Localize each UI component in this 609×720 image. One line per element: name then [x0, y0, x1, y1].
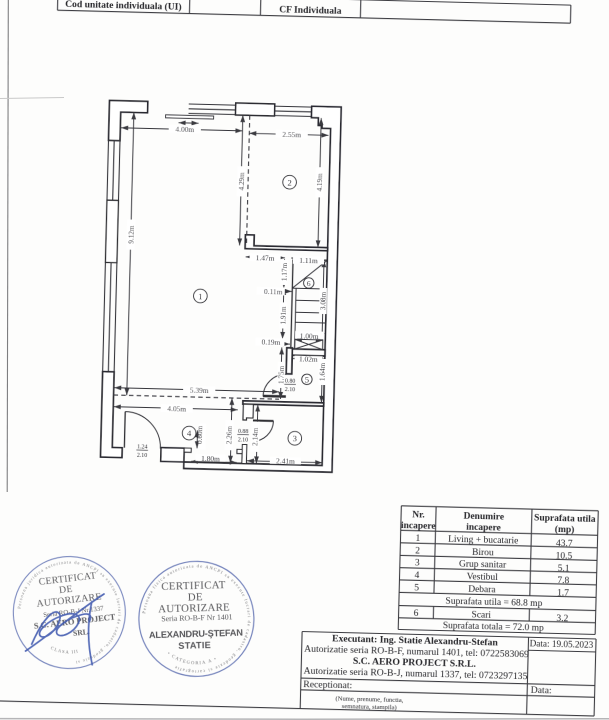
svg-text:2.55m: 2.55m: [282, 130, 301, 139]
svg-text:1.80m: 1.80m: [201, 454, 220, 463]
svg-text:incapere: incapere: [401, 521, 436, 532]
svg-text:1.00m: 1.00m: [300, 332, 319, 341]
svg-text:Denumire: Denumire: [463, 512, 504, 523]
svg-text:Scari: Scari: [471, 610, 491, 620]
svg-text:Receptionat:: Receptionat:: [303, 679, 352, 691]
svg-text:CF Individuala: CF Individuala: [279, 4, 342, 17]
svg-text:5: 5: [414, 583, 419, 593]
svg-text:5.39m: 5.39m: [190, 386, 209, 395]
svg-text:4: 4: [414, 571, 419, 581]
svg-text:2.41m: 2.41m: [276, 457, 295, 466]
svg-text:Nr.: Nr.: [412, 510, 425, 520]
svg-text:STATIE: STATIE: [178, 640, 211, 651]
svg-text:4.29m: 4.29m: [238, 172, 246, 191]
svg-text:2.10: 2.10: [137, 453, 148, 459]
svg-text:Data:: Data:: [531, 685, 552, 697]
svg-text:7.8: 7.8: [557, 576, 569, 586]
svg-text:1.64m: 1.64m: [319, 362, 327, 381]
svg-text:2.14m: 2.14m: [251, 427, 259, 446]
svg-text:4.05m: 4.05m: [167, 404, 186, 413]
svg-text:(mp): (mp): [555, 524, 575, 535]
svg-text:0.60m: 0.60m: [196, 425, 204, 444]
svg-text:9.12m: 9.12m: [127, 225, 135, 244]
svg-text:3.2: 3.2: [556, 614, 568, 624]
svg-text:5: 5: [305, 374, 310, 384]
svg-text:2.26m: 2.26m: [225, 426, 233, 445]
svg-text:1.11m: 1.11m: [299, 256, 318, 265]
svg-text:2: 2: [415, 546, 420, 556]
svg-text:3.08m: 3.08m: [319, 291, 327, 310]
svg-text:1.91m: 1.91m: [279, 306, 287, 325]
svg-text:1.7: 1.7: [557, 588, 569, 598]
svg-text:3: 3: [293, 433, 298, 443]
svg-text:4.19m: 4.19m: [316, 173, 324, 192]
svg-text:4.00m: 4.00m: [175, 125, 194, 134]
svg-text:1.47m: 1.47m: [256, 253, 275, 262]
svg-text:10.5: 10.5: [555, 551, 572, 561]
svg-text:0.11m: 0.11m: [264, 287, 283, 296]
svg-text:6: 6: [307, 279, 311, 288]
svg-text:2: 2: [287, 177, 292, 187]
svg-text:43.7: 43.7: [556, 539, 573, 549]
svg-text:Living + bucatarie: Living + bucatarie: [448, 535, 518, 547]
svg-text:1.17m: 1.17m: [281, 262, 289, 281]
svg-text:Birou: Birou: [472, 548, 494, 559]
svg-text:3: 3: [415, 559, 420, 569]
svg-text:0.19m: 0.19m: [261, 338, 280, 347]
svg-text:6: 6: [414, 609, 419, 619]
svg-text:2.10: 2.10: [238, 437, 249, 443]
svg-text:1: 1: [415, 534, 420, 544]
svg-text:Grup sanitar: Grup sanitar: [459, 560, 507, 571]
svg-text:Data: 19.05.2023: Data: 19.05.2023: [530, 638, 594, 650]
svg-text:semnatura, stampila): semnatura, stampila): [342, 703, 397, 711]
svg-text:1: 1: [198, 291, 203, 301]
svg-text:Vestibul: Vestibul: [467, 572, 499, 583]
svg-text:2.10: 2.10: [285, 387, 296, 393]
svg-text:1.02m: 1.02m: [299, 354, 318, 363]
svg-text:Suprafata utila: Suprafata utila: [534, 513, 596, 525]
svg-text:incapere: incapere: [466, 523, 501, 534]
svg-text:5.1: 5.1: [558, 564, 570, 574]
svg-text:Debara: Debara: [468, 585, 496, 596]
